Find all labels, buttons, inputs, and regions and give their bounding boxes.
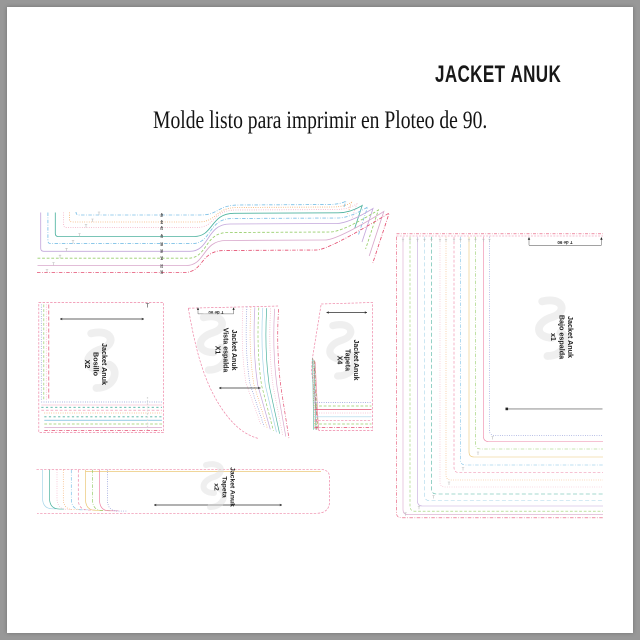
svg-text:34: 34 (160, 256, 164, 261)
svg-text:Tapeta: Tapeta (344, 349, 351, 371)
svg-text:x1: x1 (549, 333, 558, 341)
svg-text:X1: X1 (213, 346, 220, 355)
svg-text:36: 36 (160, 249, 164, 253)
svg-text:46: 46 (160, 213, 164, 217)
svg-text:X2: X2 (83, 360, 92, 369)
svg-text:38: 38 (160, 242, 164, 246)
svg-text:Jacket Anuk: Jacket Anuk (230, 330, 237, 371)
svg-text:42: 42 (160, 226, 164, 230)
svg-text:X4: X4 (335, 356, 342, 365)
svg-text:Vista espalda: Vista espalda (222, 328, 229, 373)
svg-text:x2: x2 (213, 483, 220, 491)
svg-text:Tapeta: Tapeta (221, 476, 228, 498)
svg-text:Jacket Anuk: Jacket Anuk (352, 340, 359, 381)
svg-text:32: 32 (160, 264, 164, 268)
svg-text:T de 90: T de 90 (557, 240, 573, 245)
svg-text:40: 40 (160, 234, 164, 238)
svg-text:30: 30 (160, 270, 164, 274)
svg-text:44: 44 (160, 220, 164, 225)
svg-text:Jacket Anuk: Jacket Anuk (229, 467, 236, 507)
